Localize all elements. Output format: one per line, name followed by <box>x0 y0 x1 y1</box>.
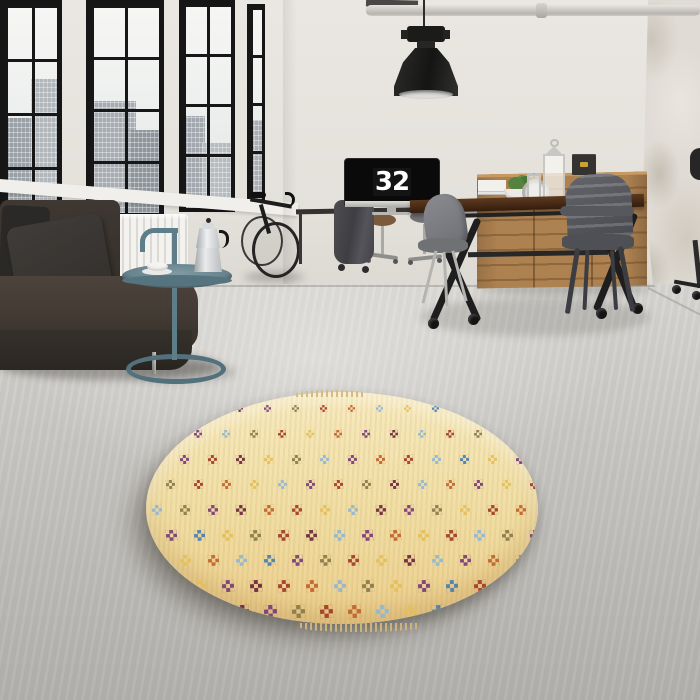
rug-motif <box>292 455 301 464</box>
book-stack <box>478 180 506 191</box>
rug-motif <box>460 405 467 412</box>
rug-motif <box>362 480 371 489</box>
rug-motif <box>460 455 469 464</box>
rug-motif <box>320 455 329 464</box>
rug-motif <box>166 530 178 542</box>
coat <box>334 200 374 264</box>
rug-motif <box>334 480 343 489</box>
box-clasp <box>580 162 588 167</box>
chair-caster <box>408 260 413 265</box>
table-caster <box>596 308 607 319</box>
desk-leg <box>299 212 302 264</box>
rug-motif <box>404 455 413 464</box>
rug-motif <box>488 555 500 567</box>
chair-caster <box>672 285 681 294</box>
rug-motif <box>348 505 359 516</box>
rug-motif <box>278 430 286 438</box>
rug-motif <box>208 605 222 619</box>
rug-motif <box>292 405 299 412</box>
rug-fringe <box>300 623 420 632</box>
rug-motif <box>180 555 192 567</box>
rug-motif <box>404 555 416 567</box>
rug-motif <box>334 430 342 438</box>
pipe-coupling <box>536 3 547 18</box>
rug-motif <box>362 530 374 542</box>
rug-motif <box>460 605 474 619</box>
window-3 <box>179 0 235 212</box>
rug-motif <box>152 555 164 567</box>
chair-caster <box>437 258 442 263</box>
rug-motif <box>208 455 217 464</box>
rug-motif <box>250 580 263 593</box>
rug-motif <box>292 555 304 567</box>
rug-motif <box>292 605 306 619</box>
rug-motif <box>264 605 278 619</box>
rug-motif <box>418 530 430 542</box>
rug-motif <box>180 455 189 464</box>
rug-motif <box>460 555 472 567</box>
lantern <box>543 154 565 202</box>
rug-motif <box>432 505 443 516</box>
lantern-ring <box>550 139 559 147</box>
rug-motif <box>474 430 482 438</box>
wall-disc <box>690 148 700 180</box>
rug-motif <box>432 455 441 464</box>
shell-chair-seat <box>418 238 468 253</box>
rug-motif <box>530 580 538 593</box>
window-muntins <box>91 5 159 213</box>
chair-caster <box>692 291 700 300</box>
rug-motif <box>166 430 174 438</box>
rug-motif <box>348 605 362 619</box>
rug-motif <box>446 530 458 542</box>
rug-motif <box>376 455 385 464</box>
rug-motif <box>348 555 360 567</box>
rug-motif <box>432 555 444 567</box>
rug-motif <box>208 405 215 412</box>
rug-motif <box>488 605 502 619</box>
rug-motif <box>180 405 187 412</box>
rug-motif <box>446 480 455 489</box>
rug-motif <box>502 430 510 438</box>
window-2 <box>86 0 164 218</box>
moka-pot-lid <box>202 222 214 229</box>
rug-motif <box>152 505 163 516</box>
rug-motif <box>446 580 459 593</box>
rug-motif <box>194 430 202 438</box>
moka-pot <box>194 246 222 272</box>
rug-motif <box>418 580 431 593</box>
rug-motif <box>250 530 262 542</box>
rug-motif <box>460 505 471 516</box>
rug-fringe <box>296 390 366 397</box>
rug-motif <box>278 580 291 593</box>
rug-motif <box>152 455 161 464</box>
rug-motif <box>362 580 375 593</box>
rack-wheel <box>362 266 369 273</box>
rug-motif <box>376 555 388 567</box>
rug-motif <box>376 505 387 516</box>
office-chair-pole <box>381 226 384 254</box>
rug-motif <box>432 605 446 619</box>
rug-motif <box>502 530 514 542</box>
metal-armchair-arm <box>560 206 634 216</box>
lamp-lug <box>443 30 450 39</box>
rug-motif <box>348 405 355 412</box>
rug-motif <box>362 430 370 438</box>
rug-motif <box>306 480 315 489</box>
rug-motif <box>222 430 230 438</box>
clock-minutes: 32 <box>373 168 411 196</box>
rug-motif <box>236 555 248 567</box>
rug-motif <box>152 405 159 412</box>
rug-motif <box>348 455 357 464</box>
rug-motif <box>390 580 403 593</box>
rug-motif <box>222 530 234 542</box>
rug-motif <box>264 455 273 464</box>
rug-motif <box>488 405 495 412</box>
coffee-cup <box>147 262 168 271</box>
ceiling-pipe <box>366 5 700 16</box>
rug-motif <box>194 530 206 542</box>
window-muntins <box>250 7 262 201</box>
rug-motif <box>264 505 275 516</box>
rug-motifs <box>146 392 538 624</box>
rug-motif <box>166 480 175 489</box>
rug-motif <box>474 580 487 593</box>
monitor-base <box>372 212 410 215</box>
rug-motif <box>264 405 271 412</box>
rug-motif <box>488 455 497 464</box>
table-caster <box>428 318 439 329</box>
rug-motif <box>404 405 411 412</box>
bicycle-rear-wheel <box>252 222 300 278</box>
moka-pot-knob <box>206 218 211 223</box>
rug-motif <box>418 480 427 489</box>
rug-motif <box>432 405 439 412</box>
rug-motif <box>502 580 515 593</box>
rug-motif <box>236 505 247 516</box>
rug-motif <box>376 605 390 619</box>
rug-motif <box>320 505 331 516</box>
rug-motif <box>320 405 327 412</box>
rug-motif <box>236 455 245 464</box>
rug-motif <box>250 480 259 489</box>
rug-motif <box>278 530 290 542</box>
chair-caster <box>393 259 398 264</box>
rug-motif <box>194 480 203 489</box>
window-muntins <box>183 4 231 208</box>
metal-armchair-seat <box>562 234 634 250</box>
rug-motif <box>222 480 231 489</box>
storage-box <box>572 154 596 175</box>
round-kilim-rug <box>146 392 538 624</box>
rug-motif <box>152 605 166 619</box>
rug-motif <box>278 480 287 489</box>
window-4 <box>247 4 265 204</box>
monitor-clock: 11 32 <box>344 158 440 206</box>
rug-motif <box>390 530 402 542</box>
rug-motif <box>390 480 399 489</box>
rack-wheel <box>338 264 345 271</box>
rug-motif <box>404 505 415 516</box>
moka-pot-top <box>196 228 220 248</box>
rug-motif <box>502 480 511 489</box>
lamp-diffuser <box>399 90 453 99</box>
rug-motif <box>222 580 235 593</box>
rug-motif <box>264 555 276 567</box>
rug-motif <box>236 405 243 412</box>
table-caster <box>468 314 479 325</box>
rug-motif <box>250 430 258 438</box>
rug-motif <box>334 530 346 542</box>
rug-motif <box>306 530 318 542</box>
rug-motif <box>208 555 220 567</box>
rug-motif <box>530 530 538 542</box>
rug-motif <box>516 405 523 412</box>
lamp-lug <box>401 30 408 39</box>
rug-motif <box>306 580 319 593</box>
rug-motif <box>208 505 219 516</box>
rug-motif <box>320 555 332 567</box>
rug-motif <box>236 605 250 619</box>
rug-motif <box>180 605 194 619</box>
rug-motif <box>516 455 525 464</box>
rug-motif <box>446 430 454 438</box>
rug-motif <box>166 580 179 593</box>
side-table-handle <box>140 228 178 252</box>
rug-motif <box>418 430 426 438</box>
rug-motif <box>488 505 499 516</box>
rug-motif <box>404 605 418 619</box>
rug-motif <box>180 505 191 516</box>
rug-motif <box>516 555 528 567</box>
rug-motif <box>334 580 347 593</box>
rug-motif <box>320 605 334 619</box>
loft-interior-photo: 11 32 <box>0 0 700 700</box>
lamp-mount <box>407 26 445 42</box>
rug-motif <box>530 480 538 489</box>
rug-motif <box>376 405 383 412</box>
side-table-tray-rim <box>122 275 232 286</box>
rug-motif <box>516 505 527 516</box>
rug-motif <box>194 580 207 593</box>
rug-motif <box>516 605 530 619</box>
rug-motif <box>390 430 398 438</box>
rug-motif <box>474 480 483 489</box>
rug-motif <box>306 430 314 438</box>
bicycle-saddle <box>250 192 266 198</box>
rug-motif <box>530 430 538 438</box>
rug-motif <box>474 530 486 542</box>
rug-motif <box>292 505 303 516</box>
